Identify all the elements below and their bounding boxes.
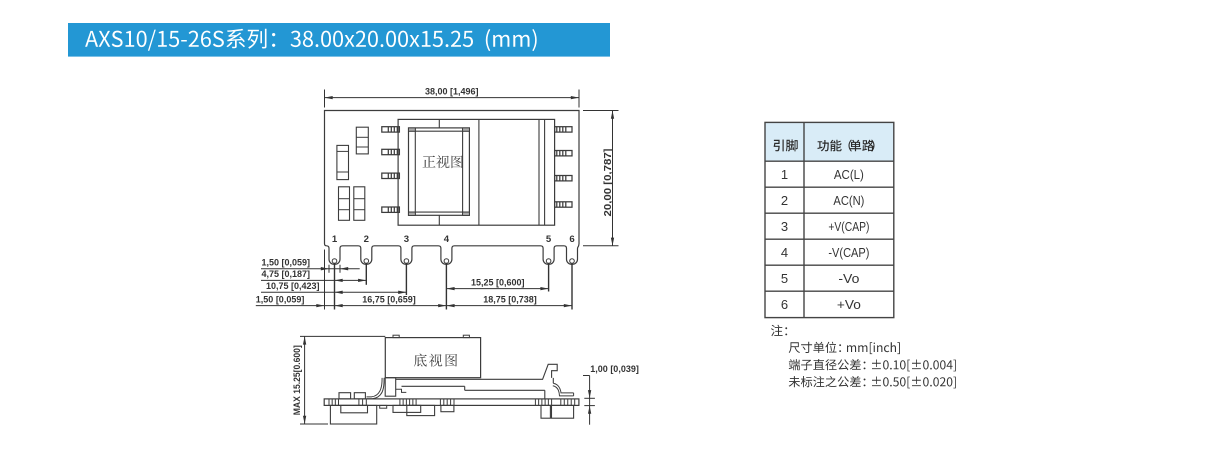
svg-text:2: 2 — [364, 234, 369, 245]
svg-text:20,00 [0,787]: 20,00 [0,787] — [603, 149, 614, 217]
svg-text:18,75 [0,738]: 18,75 [0,738] — [483, 294, 537, 304]
svg-text:1: 1 — [781, 167, 788, 182]
svg-text:16,75 [0,659]: 16,75 [0,659] — [362, 294, 416, 304]
svg-text:AC(N): AC(N) — [833, 193, 864, 208]
svg-text:15,25 [0,600]: 15,25 [0,600] — [471, 278, 525, 288]
svg-text:1,50 [0,059]: 1,50 [0,059] — [262, 257, 311, 267]
svg-text:+V(CAP): +V(CAP) — [828, 219, 869, 234]
svg-text:10,75 [0,423]: 10,75 [0,423] — [266, 281, 320, 291]
svg-text:5: 5 — [546, 234, 552, 245]
svg-text:1,50 [0,059]: 1,50 [0,059] — [256, 294, 305, 304]
svg-text:4,75 [0,187]: 4,75 [0,187] — [262, 269, 311, 279]
svg-text:1: 1 — [332, 234, 338, 245]
svg-text:3: 3 — [781, 219, 788, 234]
svg-text:38,00 [1,496]: 38,00 [1,496] — [425, 87, 479, 97]
svg-text:5: 5 — [781, 271, 788, 286]
svg-text:AC(L): AC(L) — [834, 167, 864, 182]
svg-text:MAX 15.25[0.600]: MAX 15.25[0.600] — [292, 345, 303, 415]
svg-text:-Vo: -Vo — [838, 271, 859, 286]
svg-text:4: 4 — [781, 245, 788, 260]
svg-text:2: 2 — [781, 193, 788, 208]
svg-text:+Vo: +Vo — [837, 297, 861, 312]
svg-text:1,00 [0,039]: 1,00 [0,039] — [590, 364, 639, 374]
svg-text:-V(CAP): -V(CAP) — [828, 245, 869, 260]
svg-text:6: 6 — [569, 234, 574, 245]
svg-text:4: 4 — [444, 234, 450, 245]
svg-text:3: 3 — [404, 234, 409, 245]
svg-text:6: 6 — [781, 297, 788, 312]
